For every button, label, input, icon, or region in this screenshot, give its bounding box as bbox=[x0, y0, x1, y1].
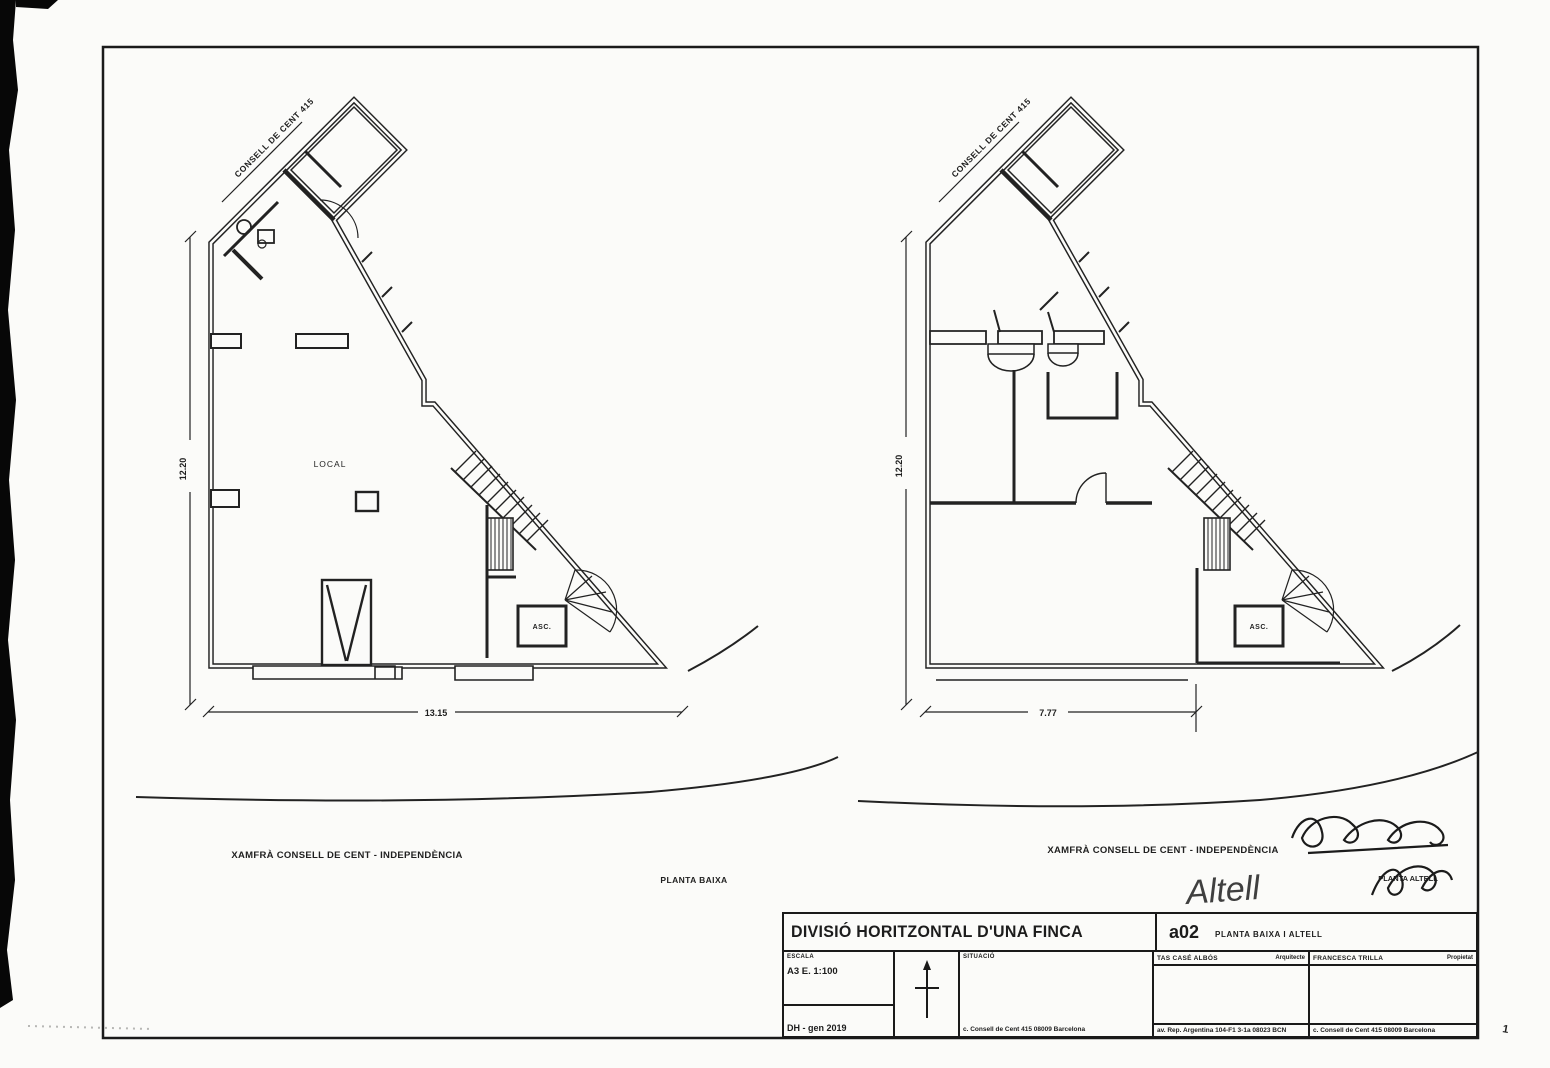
sheet-title: PLANTA BAIXA I ALTELL bbox=[1215, 930, 1322, 939]
scale-cell: ESCALA A3 E. 1:100 DH - gen 2019 bbox=[784, 952, 895, 1036]
north-cell bbox=[895, 952, 960, 1036]
left-column bbox=[356, 492, 378, 511]
right-caption: XAMFRÀ CONSELL DE CENT - INDEPENDÈNCIA bbox=[1047, 845, 1278, 856]
right-dim-horizontal-lines bbox=[920, 684, 1202, 732]
drawing-canvas: ASC. LOCAL CONSELL DE CENT 415 12.20 13.… bbox=[0, 0, 1550, 1068]
right-sink-right bbox=[1048, 344, 1078, 353]
left-hyp-ticks bbox=[362, 252, 412, 332]
title-block: DIVISIÓ HORITZONTAL D'UNA FINCA a02 PLAN… bbox=[782, 912, 1478, 1038]
left-dim-vertical-label: 12.20 bbox=[178, 458, 188, 481]
left-bottom-sills bbox=[253, 666, 533, 680]
architect-body bbox=[1154, 966, 1308, 1023]
architect-role: Arquitecte bbox=[1275, 955, 1305, 961]
right-dim-horizontal-label: 7.77 bbox=[1039, 708, 1057, 718]
architect-address-cell: av. Rep. Argentina 104-F1 3-1a 08023 BCN bbox=[1154, 1023, 1308, 1036]
left-sink-fixture bbox=[258, 230, 274, 243]
scan-edge-strip bbox=[0, 0, 18, 1008]
scale-label: ESCALA bbox=[787, 954, 890, 960]
architect-header: TAS CASÉ ALBÓS Arquitecte bbox=[1154, 952, 1308, 966]
left-display-v bbox=[322, 580, 371, 665]
architect-name: TAS CASÉ ALBÓS bbox=[1157, 955, 1218, 962]
left-sink-basin bbox=[258, 240, 266, 248]
right-plan-outline bbox=[928, 100, 1379, 666]
right-vestibule-shared-wall bbox=[1001, 170, 1051, 220]
scale-value: A3 E. 1:100 bbox=[787, 966, 890, 977]
signature-architect bbox=[1292, 817, 1448, 853]
right-hwall1-door-leaves bbox=[994, 310, 1054, 332]
right-door-leaf-top bbox=[1040, 292, 1058, 310]
left-dim-vertical: 12.20 bbox=[178, 231, 196, 710]
left-plan-outline bbox=[211, 100, 662, 666]
scale-cell-top: ESCALA A3 E. 1:100 bbox=[784, 952, 893, 1006]
left-vestibule-inner bbox=[291, 107, 397, 213]
project-title: DIVISIÓ HORITZONTAL D'UNA FINCA bbox=[791, 922, 1083, 942]
right-vestibule-partition bbox=[1022, 151, 1058, 187]
owner-body bbox=[1310, 966, 1476, 1023]
owner-name: FRANCESCA TRILLA bbox=[1313, 955, 1383, 962]
right-plan-outline-core bbox=[928, 100, 1379, 666]
architect-address: av. Rep. Argentina 104-F1 3-1a 08023 BCN bbox=[1157, 1027, 1286, 1034]
title-block-code-cell: a02 PLANTA BAIXA I ALTELL bbox=[1157, 914, 1476, 950]
title-block-header-row: DIVISIÓ HORITZONTAL D'UNA FINCA a02 PLAN… bbox=[784, 914, 1476, 952]
right-street-label: CONSELL DE CENT 415 bbox=[949, 96, 1032, 179]
right-vestibule-inner bbox=[1008, 107, 1114, 213]
scan-blob bbox=[16, 0, 58, 9]
right-sink-left-basin bbox=[988, 354, 1034, 371]
right-hwall2-door-arc bbox=[1076, 473, 1106, 503]
handwritten-altell: Altell bbox=[1183, 869, 1263, 912]
left-vestibule-partition bbox=[305, 151, 341, 187]
right-sink-right-basin bbox=[1048, 353, 1078, 366]
north-arrow-icon bbox=[895, 952, 960, 1034]
right-hyp-ticks bbox=[1079, 252, 1129, 332]
right-elevator-label: ASC. bbox=[1250, 624, 1269, 631]
owner-header: FRANCESCA TRILLA Propietat bbox=[1310, 952, 1476, 966]
left-wall-stubs bbox=[211, 334, 348, 507]
date-value: DH - gen 2019 bbox=[787, 1023, 847, 1033]
architect-cell: TAS CASÉ ALBÓS Arquitecte av. Rep. Argen… bbox=[1152, 952, 1308, 1036]
left-curb-street bbox=[136, 757, 838, 801]
right-stairs: ASC. bbox=[1168, 451, 1340, 663]
right-dim-vertical: 12.20 bbox=[894, 231, 912, 710]
situation-cell: SITUACIÓ c. Consell de Cent 415 08009 Ba… bbox=[960, 952, 1152, 1036]
title-block-detail-row: ESCALA A3 E. 1:100 DH - gen 2019 SITUACI… bbox=[784, 952, 1476, 1036]
title-block-title-cell: DIVISIÓ HORITZONTAL D'UNA FINCA bbox=[784, 914, 1157, 950]
left-bathroom bbox=[224, 202, 278, 279]
right-dim-horizontal: 7.77 bbox=[920, 684, 1202, 732]
left-room-label: LOCAL bbox=[314, 459, 347, 469]
left-plan-outline-core bbox=[211, 100, 662, 666]
left-toilet-fixture bbox=[237, 220, 251, 234]
left-vestibule-shared-wall bbox=[284, 170, 334, 220]
left-dim-horizontal: 13.15 bbox=[203, 706, 688, 718]
situation-address: c. Consell de Cent 415 08009 Barcelona bbox=[963, 1026, 1085, 1033]
owner-role: Propietat bbox=[1447, 955, 1473, 961]
right-plan: ASC. CONSELL DE CENT 415 12.20 7.77 XAMF… bbox=[858, 96, 1478, 912]
scanned-plan-sheet: ASC. LOCAL CONSELL DE CENT 415 12.20 13.… bbox=[0, 0, 1550, 1068]
owner-cell: FRANCESCA TRILLA Propietat c. Consell de… bbox=[1308, 952, 1476, 1036]
left-elevator-label: ASC. bbox=[533, 624, 552, 631]
owner-address-cell: c. Consell de Cent 415 08009 Barcelona bbox=[1310, 1023, 1476, 1036]
page-mark: 1 bbox=[1501, 1023, 1509, 1036]
right-hwall1-segments bbox=[930, 331, 1104, 344]
scan-dots bbox=[28, 1026, 152, 1029]
right-sink-left bbox=[988, 344, 1034, 354]
right-dim-vertical-label: 12.20 bbox=[894, 455, 904, 478]
left-curb-corner bbox=[688, 626, 758, 671]
left-plan-title: PLANTA BAIXA bbox=[660, 875, 727, 885]
situation-label: SITUACIÓ bbox=[963, 954, 1149, 960]
right-room-box bbox=[1048, 372, 1117, 418]
left-plan: ASC. LOCAL CONSELL DE CENT 415 12.20 13.… bbox=[136, 96, 838, 885]
right-curb-street bbox=[858, 752, 1478, 806]
left-caption: XAMFRÀ CONSELL DE CENT - INDEPENDÈNCIA bbox=[231, 850, 462, 861]
owner-address: c. Consell de Cent 415 08009 Barcelona bbox=[1313, 1027, 1435, 1034]
left-bathroom-door-leaf bbox=[233, 250, 262, 279]
left-stairs: ASC. bbox=[451, 451, 617, 658]
left-dim-horizontal-label: 13.15 bbox=[425, 708, 448, 718]
left-street-label: CONSELL DE CENT 415 bbox=[232, 96, 315, 179]
right-curb-corner bbox=[1392, 625, 1460, 671]
date-cell: DH - gen 2019 bbox=[784, 1006, 893, 1036]
sheet-code: a02 bbox=[1169, 922, 1199, 943]
